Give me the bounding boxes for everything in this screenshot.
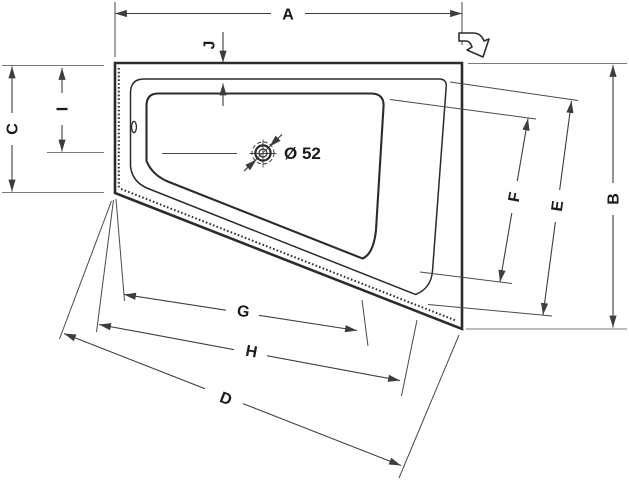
extension-line-h-right <box>402 320 418 396</box>
drain-diameter-label: Ø 52 <box>284 144 321 163</box>
sealing-strip-slope-icon <box>121 189 457 321</box>
extension-line-d-right <box>399 335 459 478</box>
dimension-label-c: C <box>5 123 22 135</box>
extension-line-e-top <box>450 82 578 101</box>
extension-lines-dark <box>60 2 579 478</box>
dimension-label-a: A <box>282 7 294 24</box>
dimension-label-g: G <box>236 303 251 322</box>
dimension-label-b: B <box>606 193 623 205</box>
technical-drawing-canvas: Ø 52 <box>0 0 629 480</box>
direction-arrow-icon <box>459 33 489 57</box>
extension-lines-light <box>2 64 627 330</box>
drain-symbol <box>162 135 282 172</box>
drain-leader-arrow-lower <box>244 160 257 172</box>
overflow-icon <box>132 121 137 132</box>
dimension-labels: A C I B E F J G H D <box>5 7 623 410</box>
drain-leader-arrow-upper <box>270 135 283 147</box>
extension-line-f-bottom <box>420 272 512 284</box>
technical-drawing-page: Ø 52 <box>0 0 629 480</box>
dimension-label-j: J <box>202 41 219 50</box>
extension-line-g-right <box>362 300 368 346</box>
extension-line-g-left <box>116 199 125 301</box>
extension-line-h-left <box>97 200 114 332</box>
extension-line-e-bottom <box>428 305 552 317</box>
tub-basin-outline <box>147 94 384 259</box>
extension-line-d-left <box>60 201 112 339</box>
dimension-label-i: I <box>55 107 72 111</box>
bathtub-drawing <box>115 63 462 329</box>
